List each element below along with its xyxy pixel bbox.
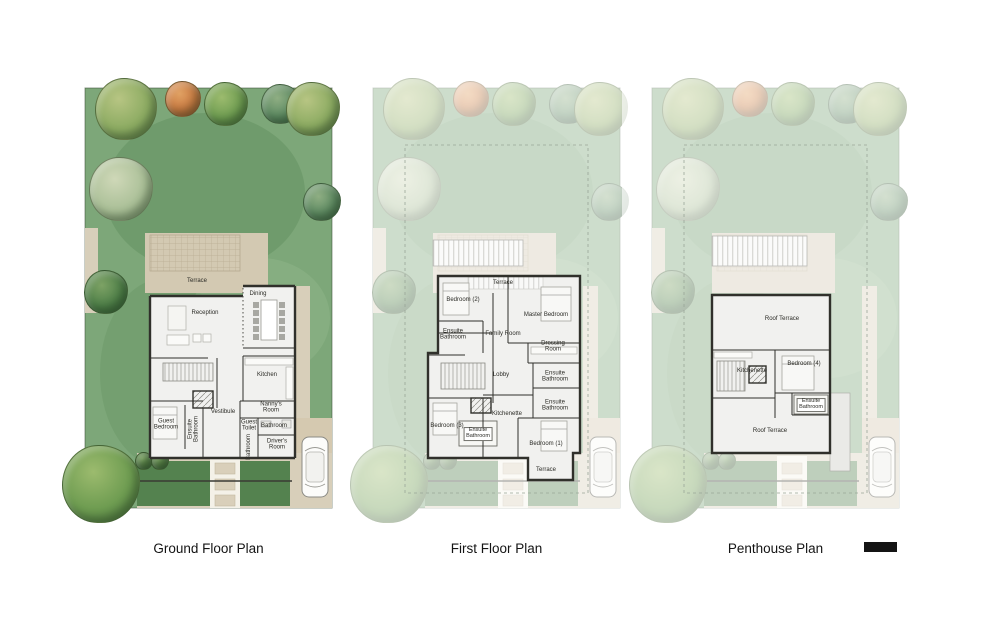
room-label: Lobby: [493, 372, 509, 378]
room-label: Kitchenette: [492, 411, 522, 417]
room-label: Roof Terrace: [765, 316, 799, 322]
room-label: Terrace: [187, 278, 207, 284]
room-label: Family Room: [485, 331, 520, 337]
room-label: Bathroom: [261, 423, 287, 429]
room-label: Nanny's Room: [260, 402, 282, 415]
room-label: Roof Terrace: [753, 428, 787, 434]
room-label: Master Bedroom: [524, 312, 568, 318]
room-label: Reception: [191, 310, 218, 316]
room-label: Terrace: [493, 280, 513, 286]
penthouse-plan: Roof TerraceKitchenetteBedroom (4)Ensuit…: [622, 63, 929, 573]
first-floor-plan: TerraceBedroom (2)Master BedroomEnsuite …: [343, 63, 650, 573]
plan-caption: Penthouse Plan: [652, 541, 899, 556]
room-label: Ensuite Bathroom: [440, 329, 466, 342]
room-label: Bathroom: [246, 434, 252, 460]
room-label: Driver's Room: [267, 439, 287, 452]
room-labels: TerraceBedroom (2)Master BedroomEnsuite …: [343, 63, 650, 528]
room-label: Guest Bedroom: [154, 419, 178, 432]
room-labels: Roof TerraceKitchenetteBedroom (4)Ensuit…: [622, 63, 929, 528]
room-label: Bedroom (3): [430, 423, 463, 429]
room-label: Ensuite Bathroom: [797, 398, 826, 412]
room-label: Ensuite Bathroom: [542, 371, 568, 384]
room-label: Dining: [249, 291, 266, 297]
room-label: Vestibule: [211, 409, 235, 415]
plan-caption: First Floor Plan: [373, 541, 620, 556]
room-label: Kitchen: [257, 372, 277, 378]
scale-bar: [864, 542, 897, 552]
room-label: Bedroom (2): [446, 297, 479, 303]
room-label: Ensuite Bathroom: [464, 427, 493, 441]
room-label: Ensuite Bathroom: [188, 416, 201, 442]
room-label: Kitchenette: [737, 368, 767, 374]
room-label: Terrace: [536, 467, 556, 473]
floor-plan-sheet: { "page": {"background": "#ffffff"}, "co…: [0, 0, 984, 626]
room-label: Bedroom (1): [529, 441, 562, 447]
room-label: Dressing Room: [541, 341, 565, 354]
room-label: Bedroom (4): [787, 361, 820, 367]
room-label: Ensuite Bathroom: [542, 400, 568, 413]
room-labels: TerraceDiningReceptionKitchenVestibuleGu…: [55, 63, 362, 528]
ground-floor-plan: TerraceDiningReceptionKitchenVestibuleGu…: [55, 63, 362, 573]
room-label: Guest Toilet: [241, 420, 257, 433]
plan-caption: Ground Floor Plan: [85, 541, 332, 556]
